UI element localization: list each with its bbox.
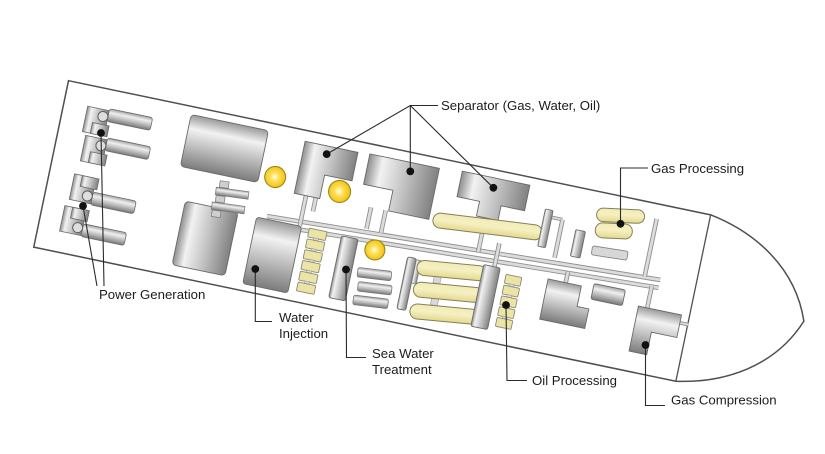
svg-text:Gas Compression: Gas Compression <box>671 393 777 408</box>
svg-text:Sea Water: Sea Water <box>372 346 434 361</box>
svg-text:Gas Processing: Gas Processing <box>651 161 744 176</box>
svg-text:Oil Processing: Oil Processing <box>532 373 617 388</box>
svg-text:Water: Water <box>279 310 314 325</box>
svg-text:Treatment: Treatment <box>372 362 432 377</box>
svg-text:Separator (Gas, Water, Oil): Separator (Gas, Water, Oil) <box>441 98 600 113</box>
svg-text:Power Generation: Power Generation <box>99 287 205 302</box>
svg-text:Injection: Injection <box>279 326 328 341</box>
